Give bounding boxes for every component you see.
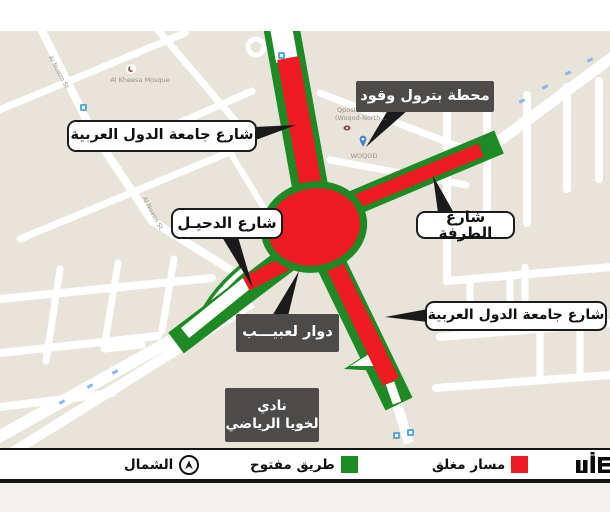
callout-text: محطة بترول وقود — [360, 89, 489, 105]
callout-petrol-station: محطة بترول وقود — [356, 81, 494, 112]
open-road-swatch — [341, 456, 358, 473]
legend-closed-lane: مسار مغلق — [432, 450, 528, 479]
top-margin — [0, 0, 610, 31]
bottom-margin — [0, 483, 610, 512]
callout-text: دوار لعبيـــب — [242, 325, 333, 341]
traffic-advisory-graphic: Al Kheesa Mosque Al Nuaim St Al Nuaim St… — [0, 0, 610, 512]
club-label-line2: لخويا الرياضي — [225, 415, 318, 433]
callout-text: شارع جامعة الدول العربية — [70, 128, 253, 144]
legend-bar: الشمال طريق مفتوح مسار مغلق — [0, 448, 610, 483]
club-label-line1: نادي — [257, 397, 286, 415]
callout-text: شارع الطرفة — [418, 209, 513, 242]
callout-text: شارع الدحيـل — [177, 215, 276, 232]
callout-arab-league-street-nw: شارع جامعة الدول العربية — [67, 120, 257, 152]
map-art: Al Kheesa Mosque Al Nuaim St Al Nuaim St… — [0, 31, 610, 448]
ashghal-logo — [576, 450, 610, 479]
label-lekhwiya-sports-club: نادي لخويا الرياضي — [225, 388, 319, 442]
north-label: الشمال — [124, 457, 173, 473]
closed-lane-swatch — [511, 456, 528, 473]
callout-lebaib-roundabout: دوار لعبيـــب — [236, 314, 339, 352]
callout-text: شارع جامعة الدول العربية — [428, 308, 605, 323]
legend-north: الشمال — [124, 450, 199, 479]
qpost-label-line2: (Woqod-North... — [335, 114, 387, 122]
legend-open-road: طريق مفتوح — [250, 450, 358, 479]
north-compass-icon — [179, 455, 199, 475]
closed-lane-label: مسار مغلق — [432, 457, 505, 473]
callout-al-tarfa-street: شارع الطرفة — [416, 211, 515, 239]
callout-al-duhail-street: شارع الدحيـل — [171, 208, 283, 239]
woqod-label: WOQOD — [351, 152, 378, 160]
mosque-label: Al Kheesa Mosque — [110, 76, 169, 84]
open-road-label: طريق مفتوح — [250, 457, 335, 473]
map-canvas[interactable]: Al Kheesa Mosque Al Nuaim St Al Nuaim St… — [0, 31, 610, 448]
callout-arab-league-street-se: شارع جامعة الدول العربية — [425, 301, 607, 331]
